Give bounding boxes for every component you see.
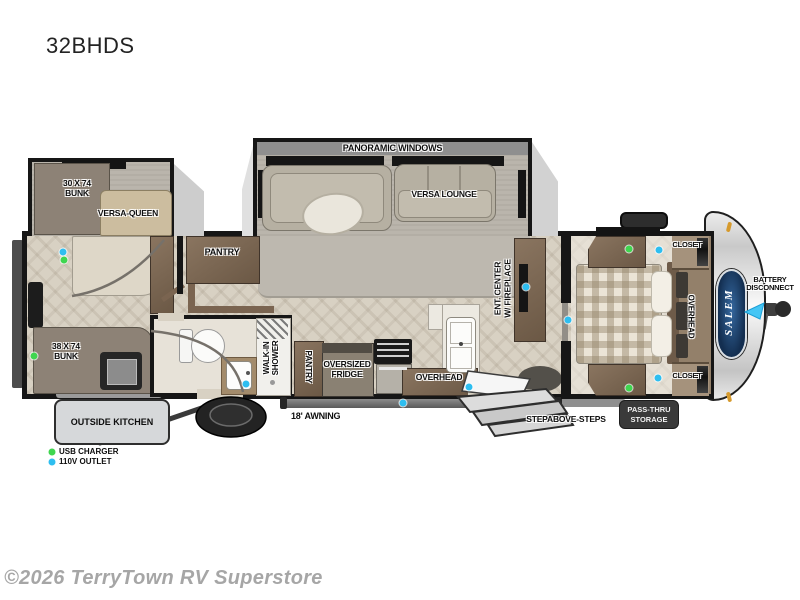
ent-center-label: ENT. CENTER W/ FIREPLACE — [493, 240, 512, 338]
lounge-cushion-line-1 — [427, 166, 429, 190]
kitchen-overhead-label: OVERHEAD — [402, 373, 476, 383]
awning-bar — [283, 399, 559, 408]
legend-usb-dot — [49, 449, 56, 456]
bunk-30-mat — [34, 163, 110, 235]
panoramic-windows-label: PANORAMIC WINDOWS — [257, 143, 528, 153]
fridge-top-band — [322, 343, 372, 353]
awning-cap-left — [280, 397, 287, 409]
bedroom-wardrobe-top — [588, 236, 646, 268]
walk-in-shower-label: WALK-IN SHOWER — [263, 326, 281, 390]
battery-disconnect-label: BATTERY DISCONNECT — [739, 276, 800, 293]
kitchen-pantry-label: PANTRY — [303, 342, 313, 392]
sink-basin-1 — [450, 322, 472, 344]
slideout-shadow-left — [174, 164, 204, 236]
pillow-1 — [651, 271, 672, 313]
bedroom-slider-door — [562, 303, 568, 341]
side-window-right — [518, 170, 526, 218]
ent-center-tv — [519, 264, 528, 312]
living-rug — [258, 236, 530, 298]
rear-entry-steps-inner — [210, 404, 252, 426]
stove-grate-1 — [377, 343, 409, 345]
legend-outlet-label: 110V OUTLET — [59, 458, 149, 467]
dealer-watermark: ©2026 TerryTown RV Superstore — [4, 567, 323, 590]
rear-entry-steps — [196, 397, 266, 437]
salem-logo-text: SALEM — [723, 277, 735, 347]
steps-label: STEPABOVE-STEPS — [510, 415, 622, 425]
bathroom-sink — [226, 361, 252, 390]
pillow-2 — [651, 315, 672, 357]
passthru-rail — [558, 399, 626, 407]
floorplan-title: 32BHDS — [46, 33, 135, 59]
bedroom-window — [596, 227, 660, 236]
bathroom-door-gap — [158, 313, 184, 321]
closet-bottom-label: CLOSET — [663, 372, 711, 380]
bunkroom-tv — [28, 282, 43, 328]
pass-thru-label: PASS-THRU STORAGE — [627, 405, 670, 424]
hall-pantry — [186, 236, 260, 284]
hall-counter-horiz — [188, 306, 274, 313]
bunkroom-wall — [177, 236, 183, 294]
bedroom-wall-bottom — [561, 341, 571, 399]
stove-grate-3 — [377, 355, 409, 357]
sink-basin-2 — [450, 347, 472, 369]
fridge-label: OVERSIZED FRIDGE — [318, 360, 376, 379]
oven-handle — [379, 367, 407, 370]
outside-kitchen-badge: OUTSIDE KITCHEN — [54, 399, 170, 445]
bunkroom-wardrobe — [150, 236, 174, 314]
hitch-knob — [775, 301, 791, 317]
bathroom-faucet — [246, 371, 250, 375]
bunk-30-label: 30 X 74 BUNK — [45, 179, 109, 198]
lounge-cushion-line-2 — [459, 166, 461, 190]
slideout-shadow-dinette-left — [242, 146, 253, 236]
sink-faucet — [459, 342, 463, 346]
outside-kitchen-label: OUTSIDE KITCHEN — [71, 417, 154, 427]
legend-usb-label: USB CHARGER — [59, 448, 149, 457]
stove-grate-2 — [377, 349, 409, 351]
awning-label: 18' AWNING — [291, 411, 381, 421]
toilet-bowl — [191, 329, 225, 363]
outside-kitchen-appliance-door — [107, 359, 137, 385]
floorplan-page: 32BHDS SALEM 30 X 74 BUNK VERSA-QUEEN 38… — [0, 0, 800, 600]
bed — [576, 264, 662, 364]
legend-outlet-dot — [49, 459, 56, 466]
bedroom-wardrobe-bottom — [588, 364, 646, 396]
main-door-gap — [468, 389, 532, 399]
bunk-38-label: 38 X 74 BUNK — [34, 342, 98, 361]
versa-lounge-label: VERSA LOUNGE — [398, 190, 490, 200]
hall-pantry-label: PANTRY — [190, 247, 254, 257]
pass-thru-badge: PASS-THRU STORAGE — [619, 400, 679, 429]
bedroom-overhead-label: OVERHEAD — [686, 286, 695, 346]
closet-top-label: CLOSET — [663, 241, 711, 249]
versa-queen-label: VERSA-QUEEN — [86, 209, 170, 219]
slideout-shadow-right — [532, 142, 558, 236]
bedroom-wall-top — [561, 231, 571, 303]
